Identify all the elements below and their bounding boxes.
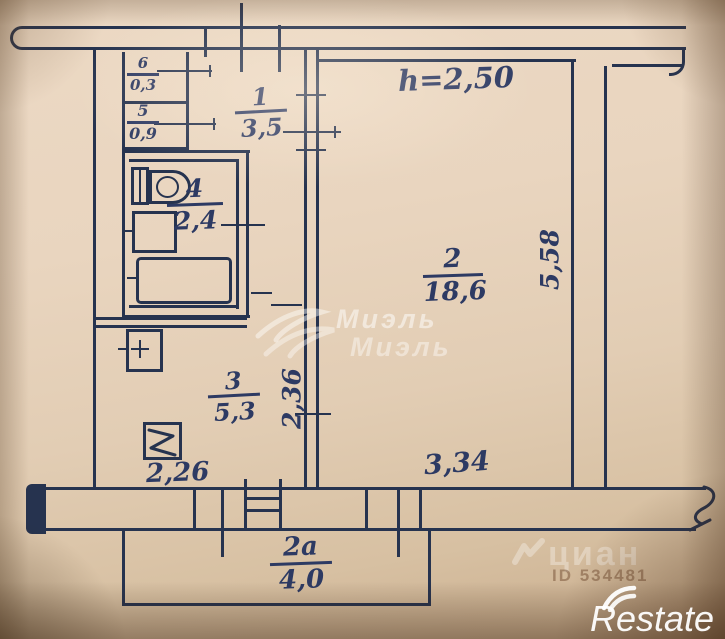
door-mark (251, 292, 272, 294)
dimension-leader (154, 123, 216, 125)
balcony-partition (397, 487, 400, 557)
room-area: 3,5 (235, 112, 288, 142)
dimension-leader (221, 224, 265, 226)
room-closet-small-label: 6 0,3 (127, 56, 159, 94)
room-number: 5 (127, 103, 159, 124)
room-hallway-label: 1 3,5 (234, 83, 289, 142)
dimension-tick (334, 126, 336, 138)
window-mark (240, 3, 243, 72)
bathtub-icon (127, 277, 136, 279)
dim-living-depth: 5,58 (536, 229, 565, 291)
room-kitchen-label: 3 5,3 (207, 367, 262, 426)
room-area: 5,3 (208, 396, 261, 426)
balcony-wall-left (122, 531, 125, 606)
wall-bathroom-bottom-inner (129, 305, 239, 308)
room-area: 0,9 (127, 124, 159, 143)
floor-plan-photo: 1 3,5 2 18,6 3 5,3 4 2,4 6 0,3 5 0,9 2a … (0, 0, 725, 639)
dim-kitchen-width: 2,26 (145, 457, 209, 489)
dim-living-width: 3,34 (423, 446, 491, 482)
wall-left (93, 50, 96, 489)
dimension-leader (283, 131, 341, 133)
wall-bathroom-top (122, 150, 250, 153)
dimension-tick (296, 149, 326, 151)
bathtub-icon (136, 257, 232, 304)
wall-kitchen-top (95, 317, 247, 320)
wall-kitchen-top-inner (95, 325, 247, 328)
dimension-tick (213, 118, 215, 130)
stove-icon (126, 329, 163, 372)
room-living-label: 2 18,6 (422, 245, 484, 308)
window-mark (278, 25, 281, 72)
wall-bathroom-right-inner (236, 159, 239, 309)
balcony-partition (221, 487, 224, 557)
wall-bathroom-left (122, 150, 125, 318)
room-number: 2a (269, 533, 332, 566)
balcony-door (244, 479, 247, 531)
balcony-door (244, 509, 282, 512)
room-number: 6 (127, 56, 159, 76)
dimension-tick (209, 65, 211, 77)
room-closet-label: 5 0,9 (127, 103, 159, 143)
dimension-tick (296, 94, 326, 96)
wall-top-inner-right (612, 64, 684, 67)
ceiling-height-note: h=2,50 (397, 60, 514, 98)
watermark-agency-line1: Миэль (336, 304, 438, 335)
wall-break-squiggle-icon (688, 482, 724, 534)
dimension-leader (157, 70, 212, 72)
sink-icon (124, 230, 132, 232)
cian-bird-icon (512, 538, 546, 570)
wall-top-end-hook (669, 49, 685, 76)
balcony-wall-right (428, 531, 431, 606)
wall-bottom-left-cap (26, 484, 46, 534)
wall-top (10, 26, 686, 50)
balcony-door (244, 497, 282, 500)
dim-kitchen-depth: 2,36 (278, 368, 307, 430)
wall-bottom-inner-line (28, 528, 696, 531)
wall-outer-right (604, 66, 607, 489)
room-balcony-label: 2a 4,0 (269, 533, 333, 596)
wall-living-left-inner (316, 50, 319, 489)
wall-tick (193, 487, 196, 531)
room-number: 2 (422, 245, 483, 278)
watermark-agency-line2: Миэль (350, 332, 452, 363)
room-number: 3 (207, 367, 260, 399)
room-area: 18,6 (423, 276, 484, 307)
room-area: 0,3 (127, 76, 159, 94)
room-area: 4,0 (270, 564, 333, 595)
watermark-brand: Restate (590, 598, 714, 639)
wall-living-right (571, 59, 574, 489)
room-number: 4 (166, 175, 223, 207)
room-area: 2,4 (167, 205, 224, 235)
stove-icon (118, 348, 126, 350)
wall-tick (419, 487, 422, 531)
wall-tick (365, 487, 368, 531)
wall-bathroom-top-inner (129, 159, 239, 162)
room-bathroom-label: 4 2,4 (166, 175, 224, 235)
window-mark (204, 27, 207, 57)
wall-bathroom-right (246, 150, 249, 318)
vent-duct-icon (146, 425, 179, 457)
toilet-icon (139, 170, 141, 202)
room-number: 1 (234, 83, 287, 115)
balcony-door (279, 479, 282, 531)
stove-icon (139, 340, 141, 358)
balcony-wall-bottom (122, 603, 431, 606)
